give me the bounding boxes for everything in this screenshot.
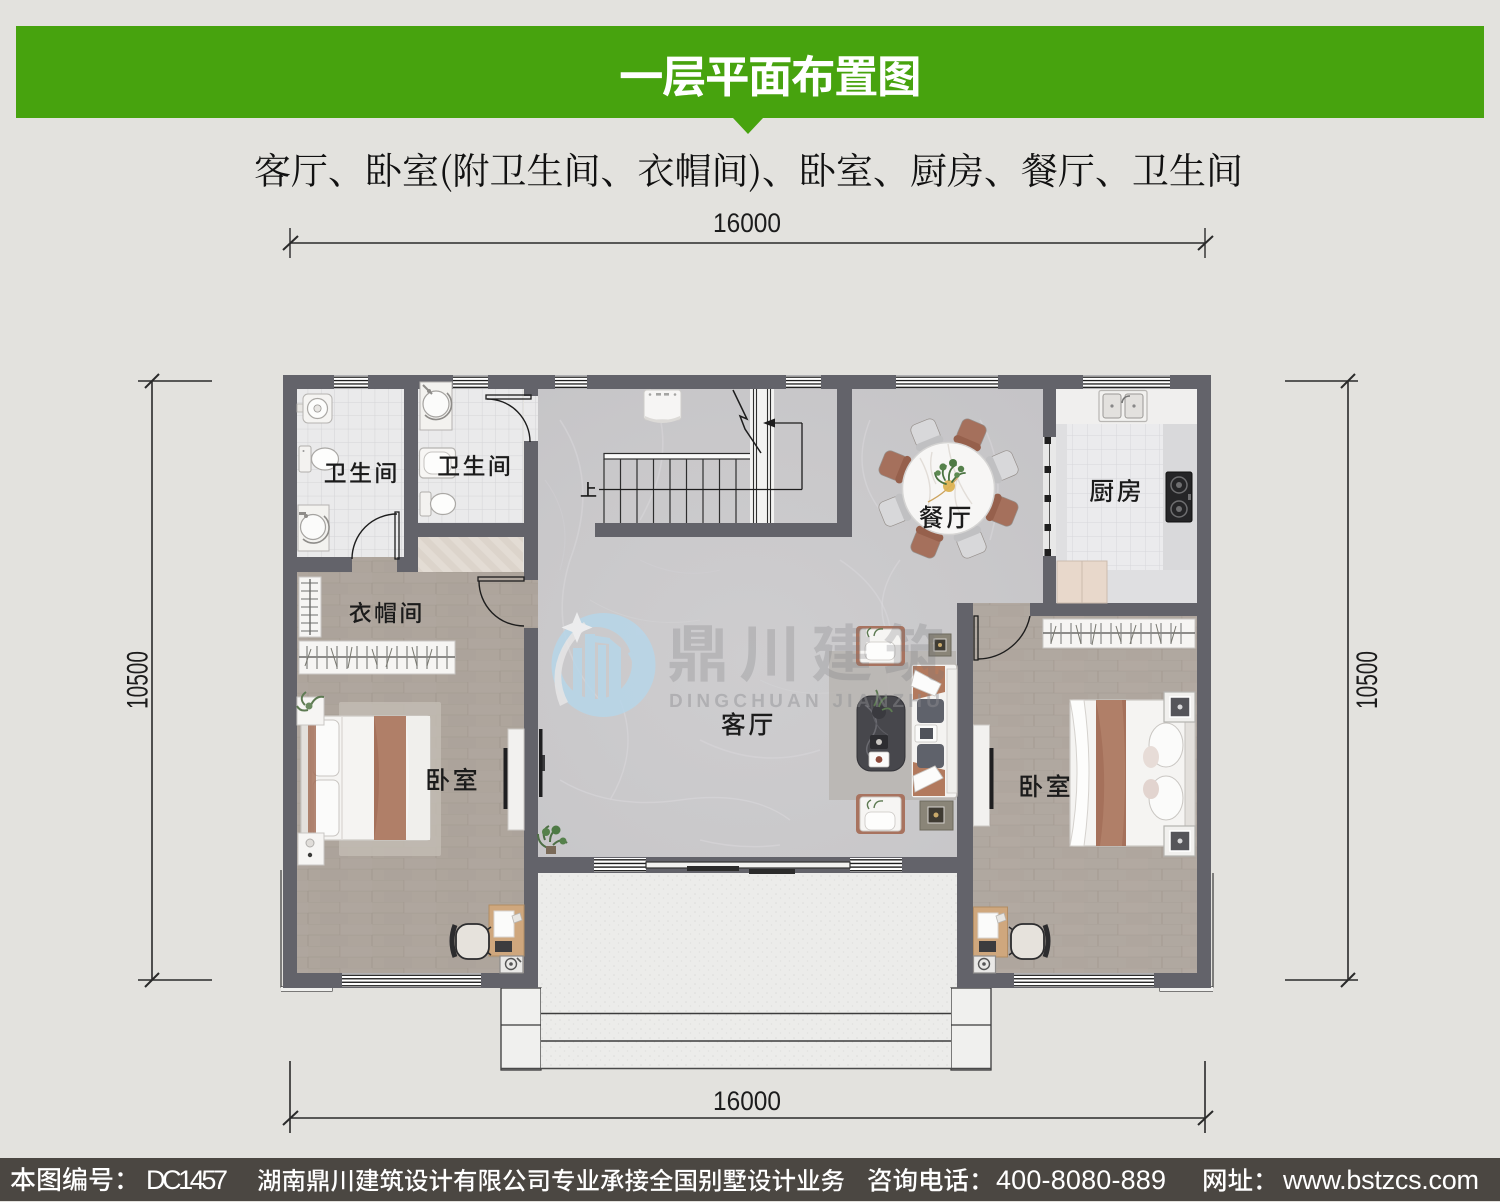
svg-text:16000: 16000: [713, 208, 781, 238]
svg-text:10500: 10500: [122, 651, 155, 709]
svg-text:10500: 10500: [1351, 651, 1384, 709]
svg-text:16000: 16000: [713, 1086, 781, 1116]
